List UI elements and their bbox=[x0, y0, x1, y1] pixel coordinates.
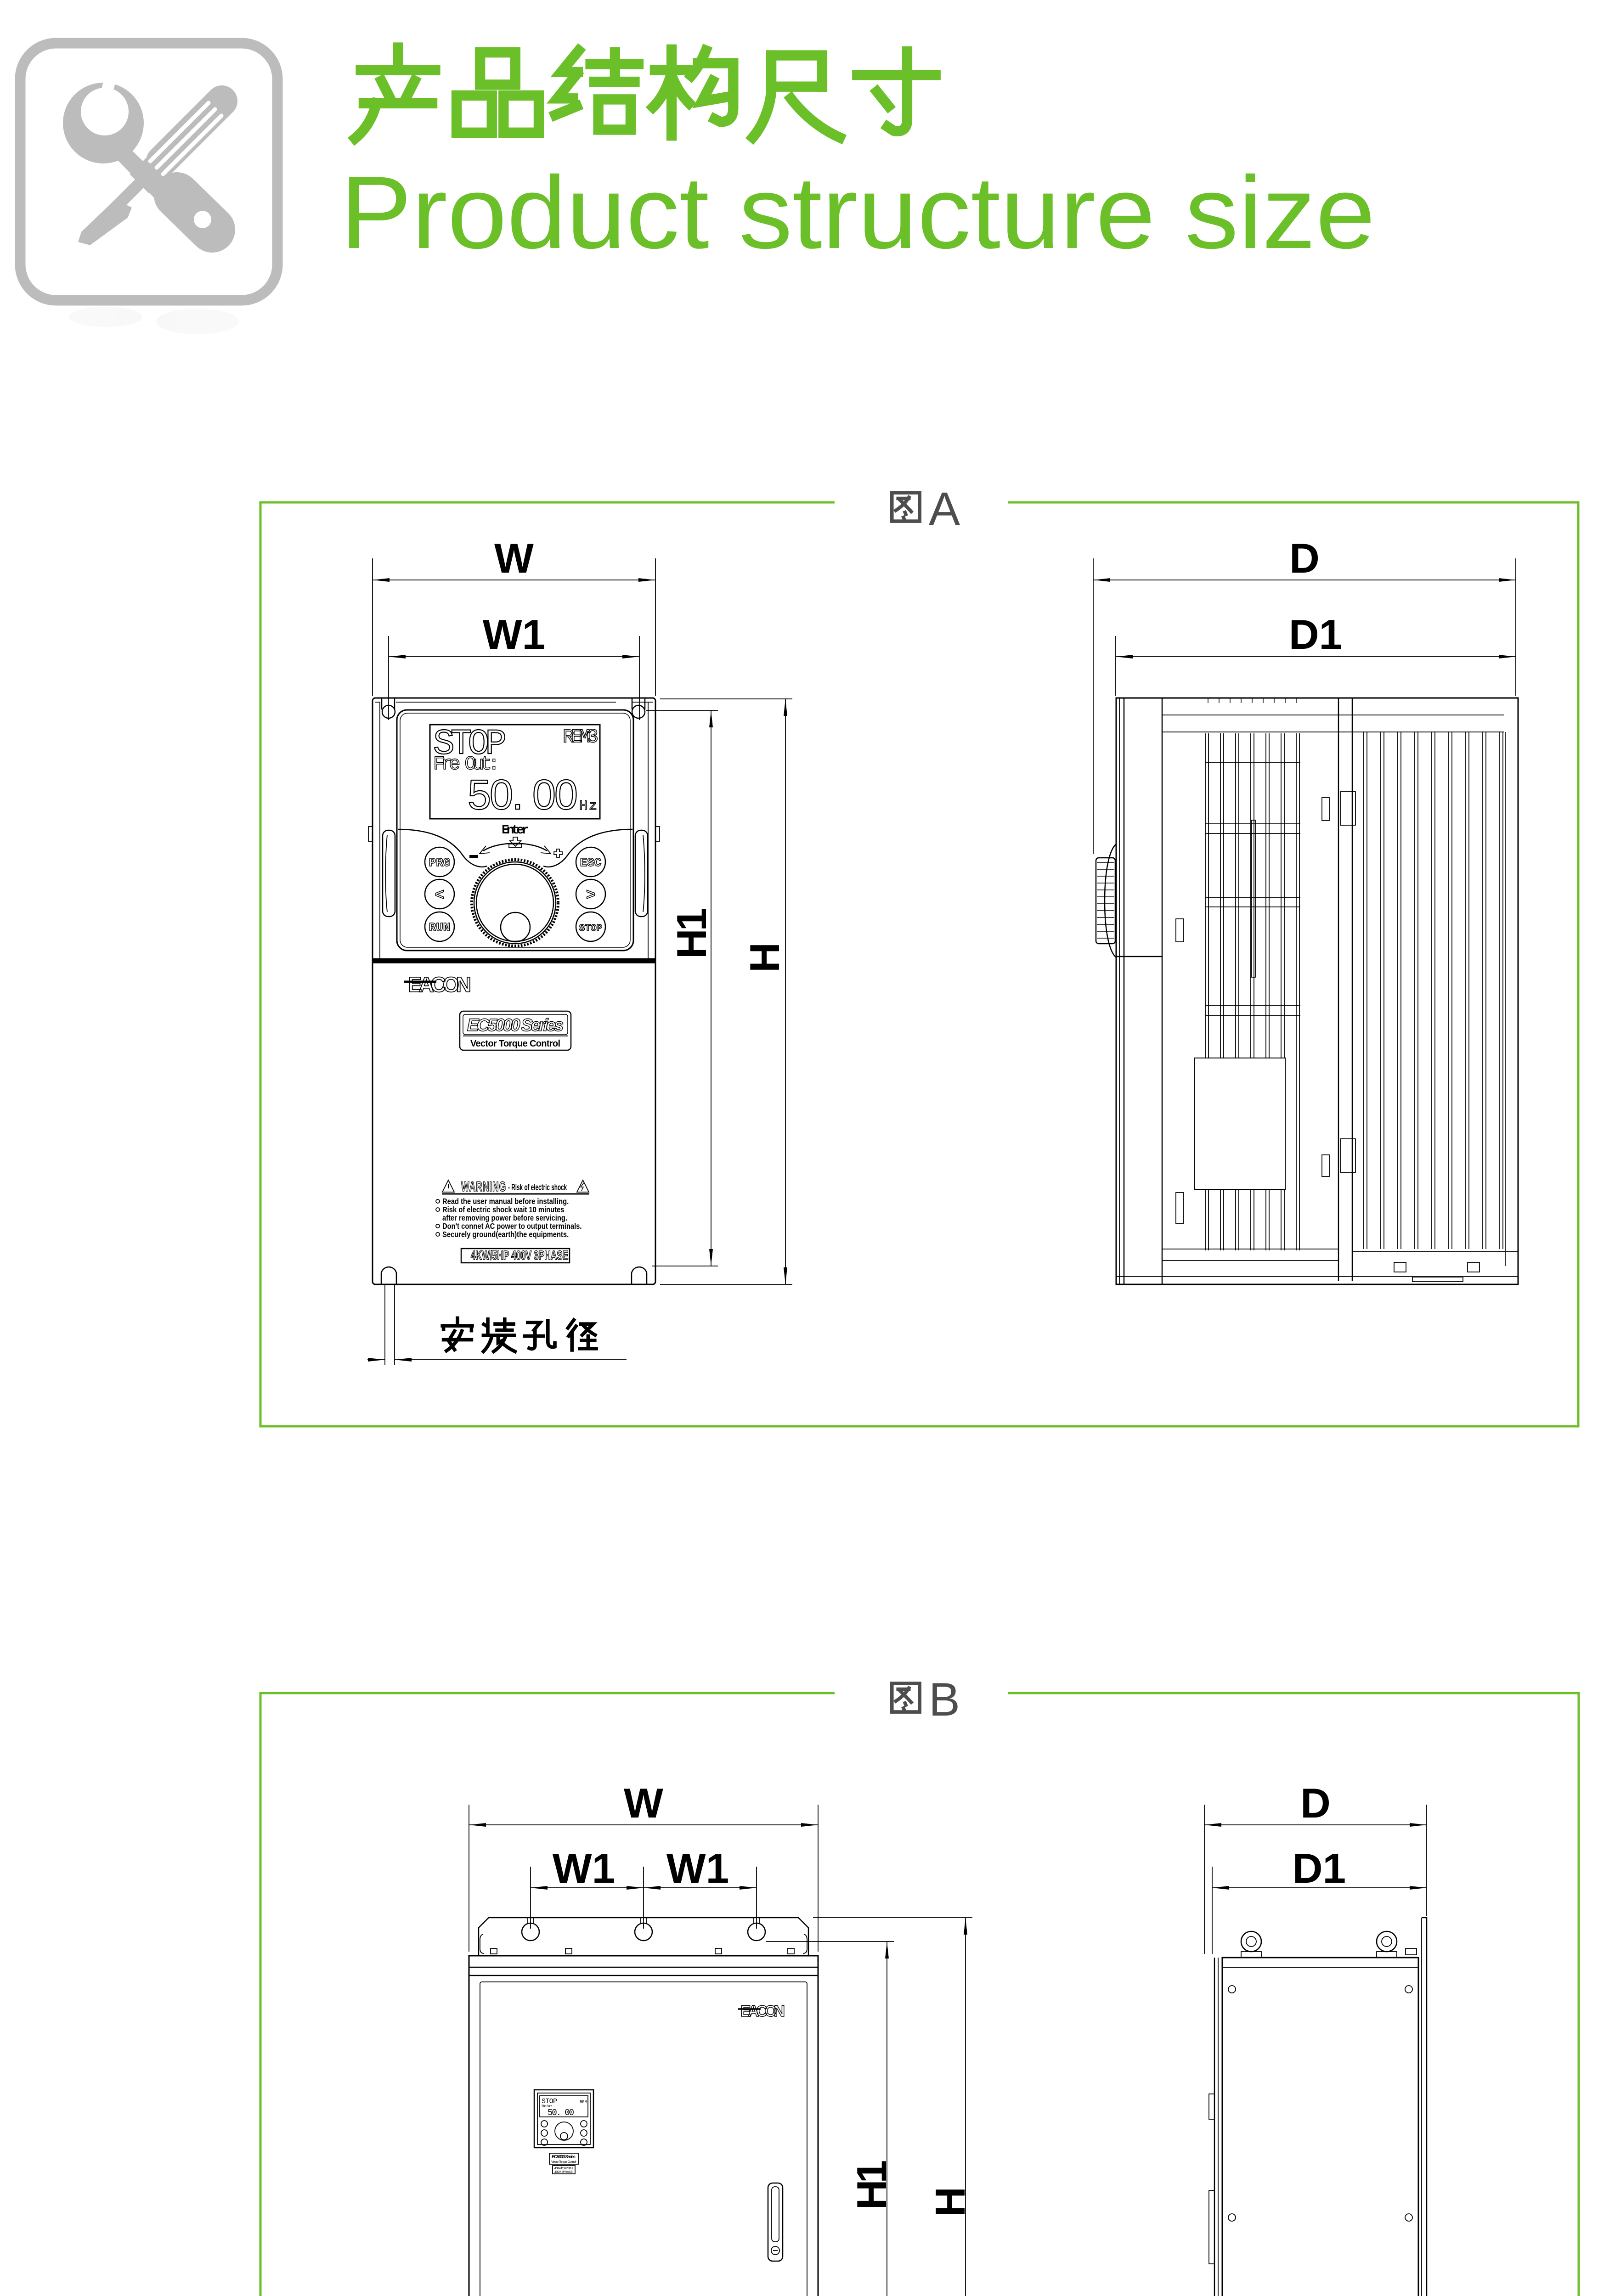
svg-text:>: > bbox=[586, 886, 595, 903]
svg-text:EC5000 Series: EC5000 Series bbox=[552, 2155, 576, 2160]
svg-text:Securely ground(earth)the equi: Securely ground(earth)the equipments. bbox=[442, 1230, 569, 1239]
svg-text:A: A bbox=[929, 483, 960, 535]
svg-text:50. 00: 50. 00 bbox=[468, 771, 578, 818]
svg-text:H: H bbox=[742, 942, 788, 973]
svg-text:ESC: ESC bbox=[580, 856, 602, 870]
svg-text:H1: H1 bbox=[669, 908, 715, 959]
svg-text:Read the user manual before in: Read the user manual before installing. bbox=[442, 1197, 569, 1206]
svg-text:PRG: PRG bbox=[429, 856, 451, 870]
svg-text:Enter: Enter bbox=[502, 823, 529, 838]
svg-text:Vector Torque Control: Vector Torque Control bbox=[470, 1039, 560, 1049]
svg-text:50. 00: 50. 00 bbox=[548, 2108, 574, 2118]
svg-text:400V 3PHASE: 400V 3PHASE bbox=[554, 2171, 573, 2174]
svg-text:H1: H1 bbox=[849, 2161, 895, 2210]
svg-text:REM: REM bbox=[580, 2100, 587, 2105]
svg-text:W1: W1 bbox=[483, 612, 546, 658]
svg-text:EC5000 Series: EC5000 Series bbox=[467, 1016, 564, 1035]
svg-text:Risk of electric shock wait 10: Risk of electric shock wait 10 minutes bbox=[442, 1205, 564, 1215]
svg-text:after removing power before se: after removing power before servicing. bbox=[442, 1214, 567, 1223]
svg-text:- Risk of electric shock: - Risk of electric shock bbox=[508, 1183, 567, 1192]
svg-text:EACON: EACON bbox=[408, 973, 470, 996]
svg-text:W1: W1 bbox=[666, 1846, 729, 1892]
svg-text:Don't connet AC power to outpu: Don't connet AC power to output terminal… bbox=[442, 1222, 582, 1231]
svg-text:<: < bbox=[435, 886, 444, 903]
svg-text:W: W bbox=[624, 1780, 663, 1827]
svg-text:REM3: REM3 bbox=[563, 726, 599, 748]
svg-text:W1: W1 bbox=[553, 1846, 615, 1892]
svg-text:STOP: STOP bbox=[579, 923, 602, 934]
svg-text:W: W bbox=[494, 535, 534, 582]
svg-text:B: B bbox=[929, 1673, 960, 1726]
svg-text:D1: D1 bbox=[1289, 612, 1342, 658]
svg-text:H: H bbox=[927, 2187, 974, 2217]
svg-text:4KW/5HP 400V 3PHASE: 4KW/5HP 400V 3PHASE bbox=[471, 1248, 568, 1263]
svg-text:45KW/60HP 3PH: 45KW/60HP 3PH bbox=[554, 2167, 573, 2170]
svg-text:D: D bbox=[1289, 535, 1320, 582]
svg-text:WARNING: WARNING bbox=[461, 1179, 506, 1195]
svg-text:D1: D1 bbox=[1293, 1846, 1346, 1892]
svg-text:RUN: RUN bbox=[429, 921, 451, 934]
svg-text:EACON: EACON bbox=[740, 2003, 785, 2020]
svg-text:D: D bbox=[1300, 1780, 1331, 1827]
svg-text:Vector Torque Control: Vector Torque Control bbox=[551, 2161, 576, 2164]
svg-text:Product structure size: Product structure size bbox=[340, 155, 1375, 270]
